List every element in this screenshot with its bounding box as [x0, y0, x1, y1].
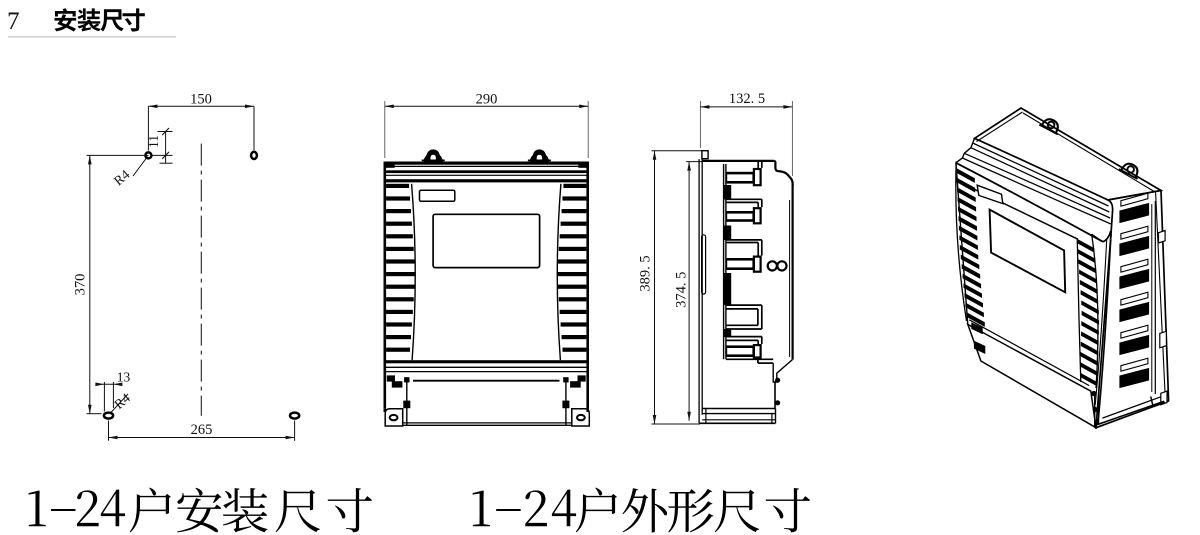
svg-text:374. 5: 374. 5	[674, 272, 690, 308]
svg-text:7: 7	[7, 8, 20, 35]
svg-text:290: 290	[476, 92, 498, 108]
svg-text:389. 5: 389. 5	[637, 255, 653, 291]
svg-text:132. 5: 132. 5	[729, 91, 765, 107]
svg-text:370: 370	[73, 274, 89, 296]
svg-text:11: 11	[146, 135, 161, 148]
svg-text:265: 265	[191, 422, 213, 438]
svg-text:13: 13	[117, 370, 131, 385]
svg-text:150: 150	[190, 92, 212, 108]
